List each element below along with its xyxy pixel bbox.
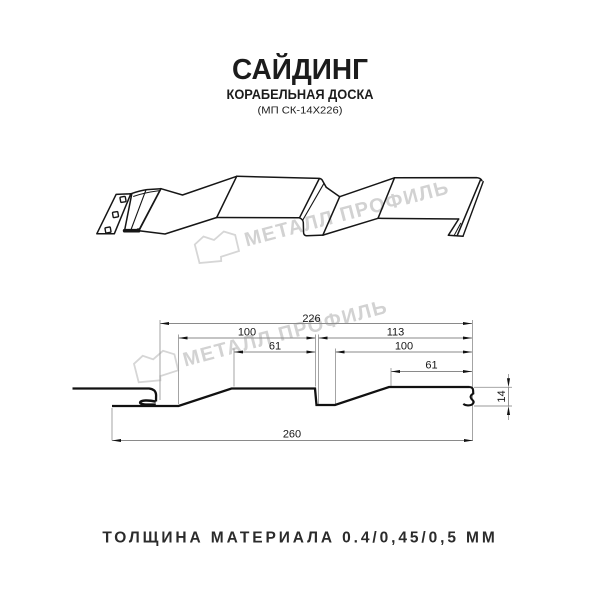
svg-text:МЕТАЛЛ ПРОФИЛЬ: МЕТАЛЛ ПРОФИЛЬ <box>181 296 391 372</box>
svg-text:МЕТАЛЛ ПРОФИЛЬ: МЕТАЛЛ ПРОФИЛЬ <box>242 177 452 252</box>
svg-text:61: 61 <box>425 360 437 372</box>
svg-text:100: 100 <box>395 341 413 353</box>
svg-text:226: 226 <box>302 313 320 325</box>
svg-text:КОРАБЕЛЬНАЯ ДОСКА: КОРАБЕЛЬНАЯ ДОСКА <box>227 87 374 102</box>
svg-text:(МП СК-14Х226): (МП СК-14Х226) <box>258 105 343 117</box>
svg-text:100: 100 <box>238 327 256 339</box>
svg-text:САЙДИНГ: САЙДИНГ <box>232 53 368 86</box>
svg-text:260: 260 <box>283 429 301 441</box>
svg-text:61: 61 <box>269 341 281 353</box>
svg-text:14: 14 <box>496 390 508 402</box>
svg-text:ТОЛЩИНА МАТЕРИАЛА 0.4/0,45/0,5: ТОЛЩИНА МАТЕРИАЛА 0.4/0,45/0,5 ММ <box>102 530 497 547</box>
svg-text:113: 113 <box>387 327 405 339</box>
